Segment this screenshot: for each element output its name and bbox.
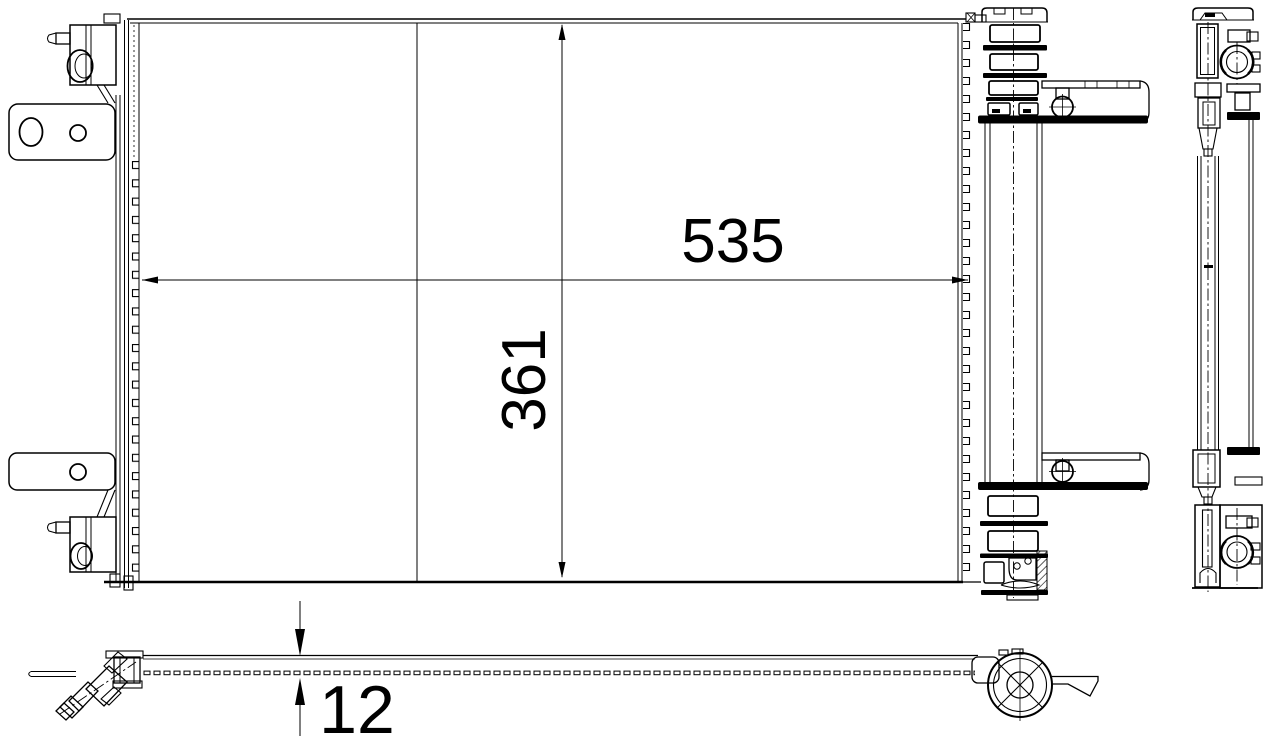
strip-fins bbox=[143, 671, 975, 677]
side-view-near bbox=[955, 8, 1149, 600]
receiver-drier bbox=[972, 649, 1098, 721]
bottom-view bbox=[29, 649, 1098, 721]
dimension-width-label: 535 bbox=[681, 207, 784, 276]
top-port bbox=[1221, 30, 1261, 84]
bracket-arm bbox=[9, 104, 115, 160]
pipe-junction bbox=[114, 657, 140, 683]
oval-hole bbox=[20, 118, 43, 146]
bracket-bottom-left bbox=[9, 453, 116, 572]
drier-bracket-arm bbox=[1052, 677, 1098, 697]
core-outline bbox=[104, 19, 966, 582]
left-foot bbox=[110, 574, 120, 587]
round-hole bbox=[70, 125, 86, 141]
dimension-height: 361 bbox=[490, 24, 566, 578]
dim-arrow-down bbox=[559, 562, 566, 578]
core-strip bbox=[143, 656, 978, 677]
round-hole bbox=[70, 464, 86, 480]
top-right-clip bbox=[966, 13, 986, 22]
bracket-pin bbox=[56, 522, 70, 533]
bracket-top-left bbox=[9, 25, 116, 160]
side-view-far bbox=[1192, 8, 1262, 592]
dimension-height-label: 361 bbox=[490, 328, 559, 431]
dim-arrow-up bbox=[559, 24, 566, 40]
drier-dish bbox=[1001, 581, 1039, 588]
dimension-width: 535 bbox=[142, 207, 968, 284]
right-fins bbox=[963, 22, 972, 578]
inlet-fitting bbox=[29, 651, 143, 720]
bracket-pin-tip bbox=[48, 522, 57, 533]
bracket-pin-tip bbox=[48, 33, 57, 44]
far-core-tube bbox=[1198, 120, 1254, 450]
left-fins bbox=[130, 160, 139, 578]
drier-hatch bbox=[1037, 551, 1047, 590]
dimension-depth: 12 bbox=[295, 601, 395, 736]
bracket-pin bbox=[56, 33, 70, 44]
dim-arrow-up bbox=[295, 678, 305, 705]
front-view bbox=[9, 13, 986, 590]
dim-arrow-left bbox=[142, 277, 158, 284]
dimension-depth-label: 12 bbox=[319, 672, 395, 736]
tank-collar bbox=[978, 482, 1148, 490]
dim-arrow-down bbox=[295, 629, 305, 656]
bottom-port bbox=[1221, 508, 1260, 585]
engineering-drawing: 535 361 bbox=[0, 0, 1280, 736]
bracket-arm bbox=[9, 453, 115, 490]
